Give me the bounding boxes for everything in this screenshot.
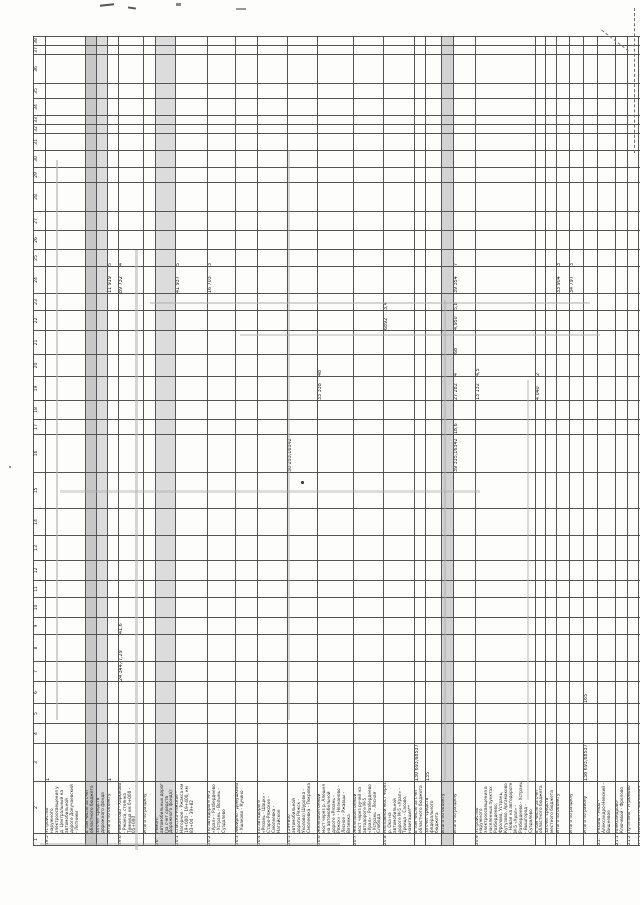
empty-cell: [258, 55, 288, 84]
empty-cell: [475, 267, 535, 294]
row-description-cell: Итого по разделу: [570, 782, 584, 834]
row-description-cell: за счет средств дорожного фонда: [96, 782, 107, 834]
empty-cell: [441, 401, 453, 420]
empty-cell: [557, 635, 570, 662]
empty-cell: [318, 231, 353, 250]
empty-cell: [598, 231, 616, 250]
empty-cell: [628, 267, 639, 294]
empty-cell: [46, 377, 86, 401]
empty-cell: [143, 183, 155, 212]
column-number-header: 11: [34, 581, 46, 598]
empty-cell: [616, 377, 628, 401]
empty-cell: [584, 401, 598, 420]
empty-cell: [288, 46, 318, 55]
empty-cell: [441, 420, 453, 435]
empty-cell: [107, 635, 118, 662]
column-number-header: 10: [34, 598, 46, 618]
empty-cell: [96, 635, 107, 662]
data-value-cell: 135: [425, 744, 441, 782]
scan-streak: [240, 334, 600, 336]
empty-cell: [570, 168, 584, 183]
empty-cell: [318, 55, 353, 84]
empty-cell: [557, 183, 570, 212]
table-row: Итого по району138 693,68537165: [584, 37, 598, 846]
data-value-cell: 39 354: [453, 267, 475, 294]
empty-cell: [546, 46, 557, 55]
empty-cell: [318, 536, 353, 561]
empty-cell: [46, 682, 86, 704]
empty-cell: [425, 704, 441, 724]
empty-cell: [46, 704, 86, 724]
empty-cell: [535, 682, 546, 704]
empty-cell: [535, 231, 546, 250]
empty-cell: [118, 704, 143, 724]
empty-cell: [441, 355, 453, 377]
empty-cell: [616, 99, 628, 116]
empty-cell: [318, 435, 353, 473]
empty-cell: [628, 581, 639, 598]
empty-cell: [318, 183, 353, 212]
empty-cell: [453, 581, 475, 598]
scan-speck: [176, 3, 181, 6]
empty-cell: [598, 635, 616, 662]
empty-cell: [453, 682, 475, 704]
row-description-cell: Итого по объекту: [107, 782, 118, 834]
empty-cell: [143, 420, 155, 435]
empty-cell: [176, 116, 208, 125]
empty-cell: [258, 618, 288, 635]
empty-cell: [258, 168, 288, 183]
row-description-cell: Железобетонный мост через р. Алешня на а…: [318, 782, 353, 834]
empty-cell: [143, 355, 155, 377]
scan-streak: [288, 150, 290, 720]
empty-cell: [616, 509, 628, 536]
empty-cell: [557, 561, 570, 581]
empty-cell: [46, 134, 86, 151]
empty-cell: [155, 116, 176, 125]
empty-cell: [570, 401, 584, 420]
empty-cell: [96, 509, 107, 536]
empty-cell: [570, 509, 584, 536]
empty-cell: [414, 168, 425, 183]
empty-cell: [155, 377, 176, 401]
empty-cell: [318, 662, 353, 682]
empty-cell: [258, 435, 288, 473]
empty-cell: [107, 212, 118, 231]
empty-cell: [118, 125, 143, 134]
table-row: Итого по разделу34 7973: [570, 37, 584, 846]
empty-cell: [535, 134, 546, 151]
empty-cell: [546, 536, 557, 561]
scan-streak: [135, 250, 138, 850]
empty-cell: [384, 581, 415, 598]
empty-cell: [143, 37, 155, 46]
empty-cell: [628, 355, 639, 377]
empty-cell: [616, 151, 628, 168]
empty-cell: [598, 355, 616, 377]
empty-cell: [143, 55, 155, 84]
empty-cell: [557, 509, 570, 536]
empty-cell: [425, 420, 441, 435]
row-description-cell: в том числе за счет областного бюджета: [535, 782, 546, 834]
empty-cell: [107, 561, 118, 581]
empty-cell: [628, 420, 639, 435]
empty-cell: [453, 401, 475, 420]
empty-cell: [118, 116, 143, 125]
empty-cell: [176, 377, 208, 401]
empty-cell: [584, 183, 598, 212]
empty-cell: [353, 581, 384, 598]
empty-cell: [584, 598, 598, 618]
empty-cell: [143, 635, 155, 662]
empty-cell: [535, 311, 546, 331]
empty-cell: [318, 682, 353, 704]
empty-cell: [475, 134, 535, 151]
empty-cell: [441, 134, 453, 151]
empty-cell: [118, 151, 143, 168]
empty-cell: [628, 598, 639, 618]
empty-cell: [288, 682, 318, 704]
empty-cell: [546, 250, 557, 267]
empty-cell: [353, 744, 384, 782]
empty-cell: [236, 183, 258, 212]
empty-cell: [584, 125, 598, 134]
empty-cell: [107, 420, 118, 435]
column-number-header: 20: [34, 355, 46, 377]
empty-cell: [441, 682, 453, 704]
empty-cell: [535, 704, 546, 724]
empty-cell: [384, 561, 415, 581]
empty-cell: [628, 151, 639, 168]
empty-cell: [236, 618, 258, 635]
empty-cell: [86, 581, 97, 598]
empty-cell: [155, 682, 176, 704]
empty-cell: [86, 682, 97, 704]
empty-cell: [475, 116, 535, 125]
empty-cell: [86, 509, 97, 536]
scan-speck: [100, 3, 114, 6]
empty-cell: [143, 311, 155, 331]
empty-cell: [258, 46, 288, 55]
empty-cell: [107, 55, 118, 84]
scan-streak: [527, 380, 529, 800]
empty-cell: [208, 84, 236, 99]
empty-cell: [107, 168, 118, 183]
empty-cell: [557, 311, 570, 331]
empty-cell: [598, 435, 616, 473]
empty-cell: [96, 331, 107, 355]
empty-cell: [425, 509, 441, 536]
empty-cell: [453, 509, 475, 536]
empty-cell: [616, 401, 628, 420]
empty-cell: [425, 311, 441, 331]
empty-cell: [441, 55, 453, 84]
empty-cell: [384, 744, 415, 782]
empty-cell: [96, 125, 107, 134]
table-row: 20.3Ямбирно - Демушкино - Ушаково - Кучи…: [236, 37, 258, 846]
empty-cell: [353, 635, 384, 662]
empty-cell: [628, 231, 639, 250]
empty-cell: [570, 37, 584, 46]
empty-cell: [236, 267, 258, 294]
table-row: в том числе за счет областного бюджета13…: [414, 37, 425, 846]
empty-cell: [96, 55, 107, 84]
empty-cell: [557, 99, 570, 116]
empty-cell: [353, 55, 384, 84]
empty-cell: [441, 561, 453, 581]
empty-cell: [155, 311, 176, 331]
data-value-cell: 41 937: [176, 267, 208, 294]
empty-cell: [236, 355, 258, 377]
empty-cell: [584, 231, 598, 250]
empty-cell: [557, 134, 570, 151]
empty-cell: [155, 99, 176, 116]
empty-cell: [584, 46, 598, 55]
empty-cell: [453, 635, 475, 662]
empty-cell: [258, 561, 288, 581]
row-number-cell: [546, 834, 557, 846]
empty-cell: [598, 46, 616, 55]
row-description-cell: Спасско-Ряжское - Нагорное - Ржакса км 1…: [176, 782, 208, 834]
row-description-cell: Ремонт автомобильных дорог (за счет сред…: [155, 782, 176, 834]
empty-cell: [546, 212, 557, 231]
empty-cell: [557, 682, 570, 704]
column-number-header: 14: [34, 509, 46, 536]
empty-cell: [628, 183, 639, 212]
empty-cell: [570, 377, 584, 401]
empty-cell: [118, 401, 143, 420]
empty-cell: [535, 509, 546, 536]
empty-cell: [143, 618, 155, 635]
empty-cell: [584, 116, 598, 125]
empty-cell: [628, 294, 639, 311]
empty-cell: [258, 267, 288, 294]
column-number-header: 33: [34, 116, 46, 125]
empty-cell: [414, 635, 425, 662]
empty-cell: [46, 435, 86, 473]
empty-cell: [46, 355, 86, 377]
empty-cell: [155, 509, 176, 536]
empty-cell: [628, 311, 639, 331]
empty-cell: [176, 662, 208, 682]
empty-cell: [46, 635, 86, 662]
empty-cell: [236, 401, 258, 420]
empty-cell: [288, 250, 318, 267]
empty-cell: [176, 509, 208, 536]
row-description-cell: (19+800 автомобильной дороги Ряжск - Ухо…: [288, 782, 318, 834]
empty-cell: [453, 116, 475, 125]
row-description-cell: Итого по разделу: [453, 782, 475, 834]
empty-cell: [208, 598, 236, 618]
empty-cell: [143, 724, 155, 744]
empty-cell: [96, 355, 107, 377]
row-number-cell: 20.7: [353, 834, 384, 846]
empty-cell: [236, 99, 258, 116]
empty-cell: [584, 168, 598, 183]
empty-cell: [46, 212, 86, 231]
empty-cell: [570, 635, 584, 662]
table-row: 20.1Спасско-Ряжское - Нагорное - Ржакса …: [176, 37, 208, 846]
empty-cell: [236, 116, 258, 125]
row-description-cell: Итого по району: [584, 782, 598, 834]
row-description-cell: Итого по объекту: [557, 782, 570, 834]
empty-cell: [425, 151, 441, 168]
empty-cell: [96, 682, 107, 704]
empty-cell: [86, 311, 97, 331]
empty-cell: [414, 377, 425, 401]
empty-cell: [584, 704, 598, 724]
empty-cell: [107, 377, 118, 401]
empty-cell: [155, 267, 176, 294]
empty-cell: [441, 311, 453, 331]
empty-cell: [118, 331, 143, 355]
data-value-cell: 16 703: [208, 267, 236, 294]
row-number-cell: 21.2: [628, 834, 639, 846]
empty-cell: [414, 420, 425, 435]
empty-cell: [616, 294, 628, 311]
empty-cell: [86, 250, 97, 267]
empty-cell: [107, 581, 118, 598]
empty-cell: [441, 581, 453, 598]
column-header-row: 1234567891011121314151617181920212223242…: [34, 37, 46, 846]
empty-cell: [384, 55, 415, 84]
empty-cell: [384, 724, 415, 744]
empty-cell: [86, 294, 97, 311]
empty-cell: [557, 37, 570, 46]
empty-cell: [353, 116, 384, 125]
empty-cell: [318, 250, 353, 267]
empty-cell: [414, 212, 425, 231]
column-number-header: 29: [34, 168, 46, 183]
data-value-cell: 11 919: [107, 267, 118, 294]
empty-cell: [155, 618, 176, 635]
empty-cell: [628, 435, 639, 473]
empty-cell: [598, 84, 616, 99]
empty-cell: [46, 401, 86, 420]
table-row: в том числе за счет областного бюджета: [86, 37, 97, 846]
empty-cell: [176, 401, 208, 420]
empty-cell: [143, 561, 155, 581]
empty-cell: [384, 84, 415, 99]
empty-cell: [616, 231, 628, 250]
empty-cell: [86, 55, 97, 84]
data-value-cell: 7,29: [118, 635, 143, 662]
empty-cell: [535, 55, 546, 84]
empty-cell: [288, 635, 318, 662]
empty-cell: [598, 99, 616, 116]
empty-cell: [86, 183, 97, 212]
empty-cell: [353, 618, 384, 635]
empty-cell: [143, 682, 155, 704]
empty-cell: [96, 37, 107, 46]
empty-cell: [557, 231, 570, 250]
empty-cell: [236, 435, 258, 473]
empty-cell: [384, 509, 415, 536]
empty-cell: [46, 536, 86, 561]
table-row: 19.5Устройство наружного электроосвещени…: [46, 37, 86, 846]
empty-cell: [176, 635, 208, 662]
empty-cell: [546, 125, 557, 134]
empty-cell: [318, 125, 353, 134]
empty-cell: [414, 682, 425, 704]
empty-cell: [414, 37, 425, 46]
empty-cell: [535, 662, 546, 682]
data-value-cell: 39 335,16342: [453, 435, 475, 473]
empty-cell: [96, 581, 107, 598]
empty-cell: [414, 151, 425, 168]
data-value-cell: 33 338: [318, 377, 353, 401]
empty-cell: [546, 682, 557, 704]
empty-cell: [353, 250, 384, 267]
column-number-header: 5: [34, 704, 46, 724]
data-value-cell: 165: [584, 682, 598, 704]
empty-cell: [143, 267, 155, 294]
empty-cell: [570, 116, 584, 125]
empty-cell: [96, 183, 107, 212]
empty-cell: [616, 724, 628, 744]
empty-cell: [46, 561, 86, 581]
empty-cell: [616, 536, 628, 561]
row-description-cell: в том числе за счет областного бюджета: [86, 782, 97, 834]
empty-cell: [384, 37, 415, 46]
empty-cell: [384, 151, 415, 168]
empty-cell: [143, 125, 155, 134]
empty-cell: [546, 744, 557, 782]
empty-cell: [384, 267, 415, 294]
empty-cell: [425, 46, 441, 55]
empty-cell: [557, 212, 570, 231]
data-value-cell: 24 344,42058: [118, 662, 143, 682]
empty-cell: [143, 377, 155, 401]
empty-cell: [86, 420, 97, 435]
empty-cell: [628, 250, 639, 267]
empty-cell: [384, 420, 415, 435]
empty-cell: [414, 125, 425, 134]
empty-cell: [414, 55, 425, 84]
row-number-cell: [441, 834, 453, 846]
empty-cell: [535, 420, 546, 435]
empty-cell: [557, 704, 570, 724]
empty-cell: [570, 99, 584, 116]
row-description-cell: Ямбирно - Демушкино - Ушаково - Кучино: [236, 782, 258, 834]
empty-cell: [155, 231, 176, 250]
column-number-header: 23: [34, 294, 46, 311]
row-description-cell: Рязань - Рясы - Александро-Невский - Виш…: [598, 782, 616, 834]
empty-cell: [96, 420, 107, 435]
empty-cell: [118, 536, 143, 561]
empty-cell: [441, 231, 453, 250]
column-number-header: 9: [34, 618, 46, 635]
empty-cell: [453, 46, 475, 55]
column-number-header: 34: [34, 99, 46, 116]
empty-cell: [46, 250, 86, 267]
column-number-header: 25: [34, 250, 46, 267]
empty-cell: [176, 355, 208, 377]
empty-cell: [441, 744, 453, 782]
empty-cell: [107, 183, 118, 212]
row-description-cell: Путятино - Угрюмово: [628, 782, 639, 834]
empty-cell: [208, 581, 236, 598]
empty-cell: [384, 682, 415, 704]
empty-cell: [155, 125, 176, 134]
empty-cell: [288, 581, 318, 598]
empty-cell: [208, 509, 236, 536]
empty-cell: [236, 635, 258, 662]
empty-cell: [118, 99, 143, 116]
empty-cell: [453, 561, 475, 581]
empty-cell: [86, 704, 97, 724]
empty-cell: [86, 151, 97, 168]
